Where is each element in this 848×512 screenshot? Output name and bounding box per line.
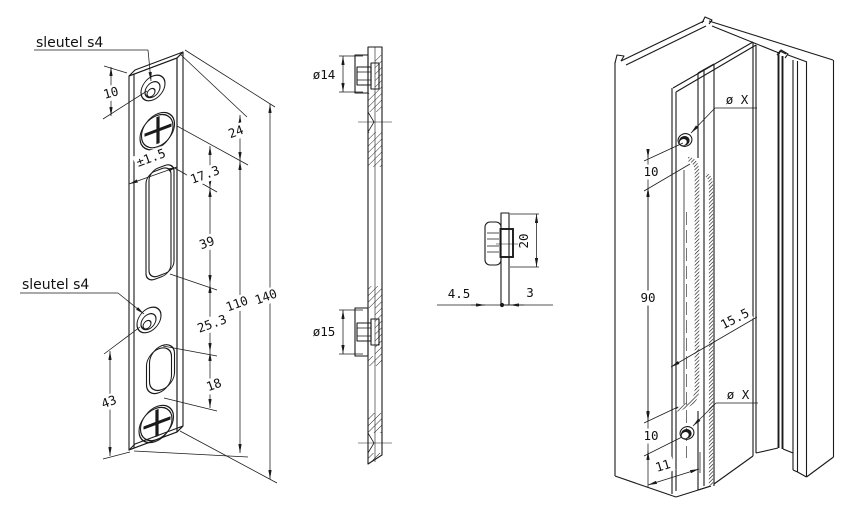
svg-text:ø X: ø X: [727, 387, 750, 402]
groove-cut-edge-right: [706, 175, 711, 486]
dim-groove-width: 15.5: [716, 304, 753, 333]
dim-detail-baseline: 4.5 3: [437, 285, 553, 307]
svg-text:sleutel s4: sleutel s4: [36, 35, 103, 51]
deadbolt-slot: [147, 341, 175, 398]
svg-text:17.3: 17.3: [188, 162, 221, 186]
dim-origin-dot: [500, 303, 504, 307]
dim-slot-to-hole: 25.3: [193, 311, 230, 337]
svg-text:15.5: 15.5: [718, 305, 752, 332]
latch-slot: [146, 162, 174, 283]
dim-top-to-screw: 24: [223, 121, 249, 143]
profile-top-rim: [615, 17, 833, 92]
callout-hole-top: ø X: [691, 92, 757, 133]
countersink-hole-bottom: [137, 303, 161, 336]
dim-slot-length: 39: [194, 232, 220, 254]
svg-text:20: 20: [516, 233, 531, 248]
dim-hole-to-bottom: 43: [96, 391, 122, 413]
plate-edge-detail: [501, 213, 509, 305]
dim-thickness: 3: [526, 285, 534, 300]
svg-text:10: 10: [643, 428, 658, 443]
phillips-screw-bottom: [139, 400, 174, 447]
drill-hole-bottom: [678, 425, 695, 442]
groove-cut-edge-left: [677, 159, 697, 411]
svg-text:110: 110: [224, 293, 250, 315]
tolerance-arrow: [129, 167, 177, 184]
dim-depth: 4.5: [448, 286, 471, 301]
keeper-body-detail: [485, 222, 501, 265]
svg-text:140: 140: [253, 286, 279, 308]
keeper-internal-lines: [487, 233, 499, 252]
dim-groove-length: 90: [637, 290, 659, 306]
dim-hole-offset: 10: [98, 82, 123, 103]
countersink-hole-top: [141, 71, 165, 104]
dim-hole-top-offset: 10: [640, 164, 662, 180]
dim-total-height: 140: [250, 285, 282, 309]
svg-text:sleutel s4: sleutel s4: [22, 277, 89, 293]
svg-text:ø15: ø15: [313, 324, 336, 339]
plate-top-face: [129, 52, 183, 76]
svg-text:90: 90: [640, 290, 655, 305]
technical-drawing-page: 10 ±1.5 17.3 39 25.3 18 24 110: [0, 0, 848, 512]
label-sleutel-bottom: sleutel s4: [20, 277, 144, 314]
dim-tolerance: ±1.5: [132, 145, 169, 171]
svg-text:10: 10: [643, 164, 658, 179]
section-view: ø14 ø15: [313, 47, 392, 464]
dim-screw-span: 110: [221, 292, 253, 316]
strike-plate-face: [129, 58, 177, 452]
detail-view: 20 4.5 3: [437, 213, 553, 307]
isometric-view: 10 90 10 11 15.5 ø X ø X: [615, 17, 834, 497]
plate-side-face: [177, 52, 183, 432]
drill-hole-top: [676, 132, 693, 149]
callout-hole-bottom: ø X: [693, 387, 758, 426]
svg-text:25.3: 25.3: [195, 311, 228, 335]
front-view: 10 ±1.5 17.3 39 25.3 18 24 110: [20, 35, 282, 483]
dim-oval-length: 18: [201, 374, 227, 396]
dim-hole-bottom-offset: 10: [640, 428, 662, 444]
spring-clip-detail: [501, 229, 514, 257]
technical-drawing-canvas: 10 ±1.5 17.3 39 25.3 18 24 110: [0, 0, 848, 512]
svg-text:ø14: ø14: [313, 67, 336, 82]
dim-screw-to-slot: 17.3: [186, 162, 223, 188]
svg-text:ø X: ø X: [726, 92, 749, 107]
dim-detail-height: 20: [510, 214, 539, 267]
